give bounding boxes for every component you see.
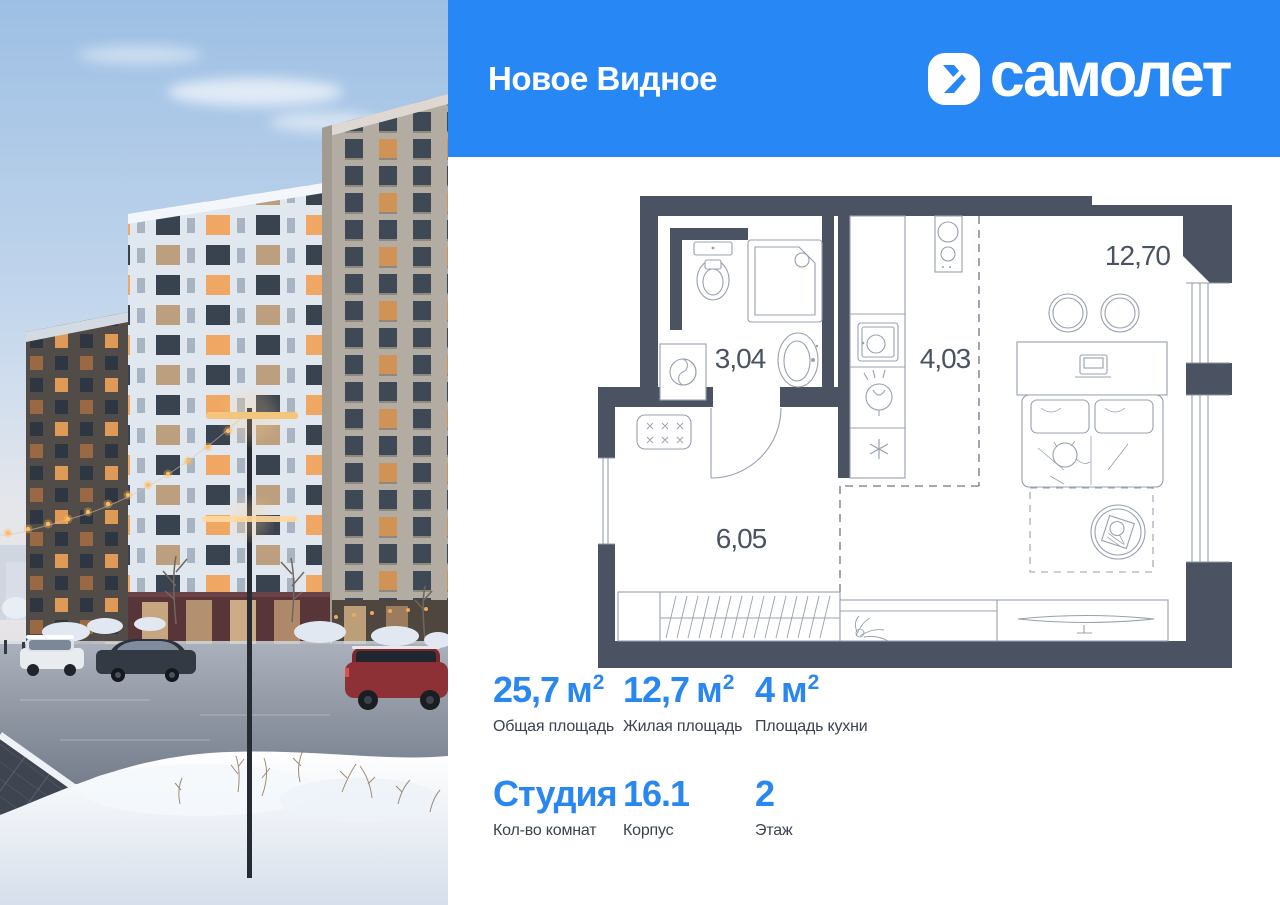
- window-right-bottom: [1186, 395, 1230, 562]
- tower-right: [322, 94, 448, 650]
- apartment-stats: 25,7м2 Общая площадь 12,7м2 Жилая площад…: [493, 670, 1005, 878]
- building-photo: [0, 0, 448, 905]
- listing-card: Новое Видное самолет: [448, 0, 1280, 905]
- kitchen-sink-icon: [858, 323, 898, 361]
- stat-label: Этаж: [755, 822, 1005, 840]
- brand-logo: самолет: [928, 47, 1230, 110]
- stat-label: Корпус: [623, 822, 755, 840]
- window-left: [598, 458, 615, 544]
- bathroom-fixtures: [660, 240, 822, 400]
- stat-kitchen-area: 4м2 Площадь кухни: [755, 670, 1005, 774]
- toilet-icon: [694, 242, 732, 300]
- shower-icon: [748, 240, 822, 322]
- stat-label: Общая площадь: [493, 718, 623, 736]
- washing-machine-icon: [660, 344, 706, 400]
- stat-value: 12,7м2: [623, 670, 755, 710]
- stat-label: Кол-во комнат: [493, 822, 623, 840]
- samolet-logo-icon: [928, 53, 980, 105]
- stat-living-area: 12,7м2 Жилая площадь: [623, 670, 755, 774]
- window-right-top: [1186, 283, 1230, 363]
- stat-floor: 2 Этаж: [755, 774, 1005, 878]
- stat-value: Студия: [493, 774, 623, 814]
- room-area-kitchen: 4,03: [920, 343, 971, 374]
- stat-value: 4м2: [755, 670, 1005, 710]
- stove-icon: [935, 216, 962, 272]
- stools-icon: [1049, 294, 1139, 332]
- stat-total-area: 25,7м2 Общая площадь: [493, 670, 623, 774]
- room-area-bathroom: 3,04: [715, 343, 766, 374]
- desk-icon: [1017, 342, 1167, 395]
- door-swing: [711, 408, 781, 478]
- rug-plant-icon: [1030, 488, 1153, 572]
- brand-name: самолет: [990, 44, 1230, 107]
- stat-value: 16.1: [623, 774, 755, 814]
- wardrobe-icon: [618, 592, 840, 641]
- sink-icon: [778, 333, 818, 387]
- stat-value: 2: [755, 774, 1005, 814]
- electrical-panel-icon: [637, 415, 691, 449]
- floor-plan: 3,04 4,03 6,05 12,70: [598, 196, 1232, 668]
- stat-value: 25,7м2: [493, 670, 623, 710]
- room-area-hallway: 6,05: [716, 523, 767, 554]
- stat-rooms: Студия Кол-во комнат: [493, 774, 623, 878]
- stat-label: Жилая площадь: [623, 718, 755, 736]
- tv-stand-icon: [840, 600, 1168, 641]
- room-area-living: 12,70: [1105, 240, 1170, 271]
- bed-icon: [1022, 395, 1163, 487]
- stat-building: 16.1 Корпус: [623, 774, 755, 878]
- page-title: Новое Видное: [488, 60, 717, 98]
- stat-label: Площадь кухни: [755, 718, 1005, 736]
- header: Новое Видное самолет: [448, 0, 1280, 157]
- tower-left: [26, 312, 128, 650]
